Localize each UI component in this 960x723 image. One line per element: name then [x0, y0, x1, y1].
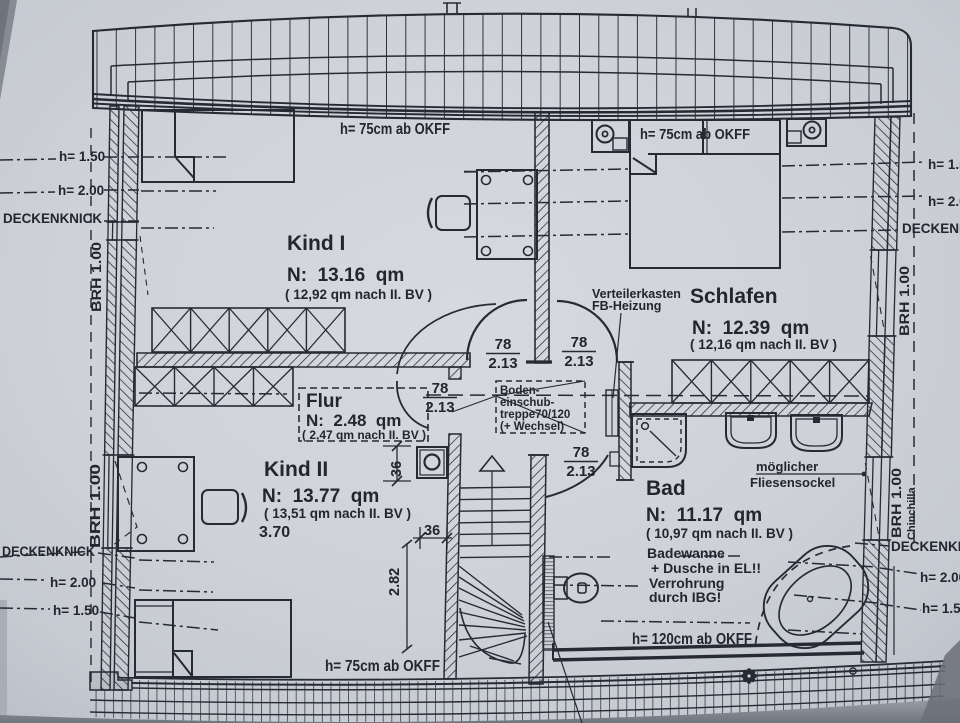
svg-text:Boden-: Boden-: [500, 385, 540, 397]
svg-text:Kind II: Kind II: [264, 458, 328, 481]
svg-text:FB-Heizung: FB-Heizung: [592, 299, 661, 313]
svg-text:BRH 1.00: BRH 1.00: [88, 464, 104, 548]
svg-text:36: 36: [424, 523, 440, 539]
svg-text:Fliesensockel: Fliesensockel: [750, 475, 835, 490]
svg-text:Bad: Bad: [646, 477, 686, 500]
svg-text:2.13: 2.13: [488, 355, 517, 372]
svg-text:DECKENKNICK: DECKENKNICK: [3, 211, 102, 226]
svg-text:BRH 1.00: BRH 1.00: [889, 468, 904, 538]
svg-text:h= 75cm ab OKFF: h= 75cm ab OKFF: [340, 121, 450, 138]
svg-text:( 10,97 qm nach II. BV ): ( 10,97 qm nach II. BV ): [646, 526, 793, 541]
svg-text:BRH 1.00: BRH 1.00: [897, 266, 912, 336]
svg-text:N: 13.77 qm: N: 13.77 qm: [262, 486, 379, 507]
svg-text:78: 78: [571, 334, 588, 351]
svg-text:2.82: 2.82: [387, 568, 403, 596]
svg-text:3.70: 3.70: [259, 524, 290, 541]
svg-text:N: 11.17 qm: N: 11.17 qm: [646, 505, 762, 526]
svg-text:N: 12.39 qm: N: 12.39 qm: [692, 318, 809, 339]
svg-text:h= 1.50: h= 1.50: [59, 149, 105, 164]
svg-text:DECKENKNICK: DECKENKNICK: [902, 221, 960, 236]
svg-text:+ Dusche in EL!!: + Dusche in EL!!: [651, 560, 761, 576]
svg-text:78: 78: [495, 336, 512, 353]
svg-text:h= 2.00: h= 2.00: [50, 575, 96, 590]
svg-text:h= 1.50: h= 1.50: [922, 601, 960, 616]
svg-text:36: 36: [389, 461, 405, 477]
svg-text:DECKENKNICK: DECKENKNICK: [891, 539, 960, 554]
svg-text:Chinchilla: Chinchilla: [906, 487, 918, 540]
svg-text:h= 2.00: h= 2.00: [58, 183, 104, 198]
svg-text:Flur: Flur: [306, 391, 342, 412]
svg-text:h= 120cm ab OKFF: h= 120cm ab OKFF: [632, 631, 752, 648]
svg-text:einschub-: einschub-: [500, 397, 554, 409]
svg-text:h= 2.00: h= 2.00: [920, 570, 960, 585]
svg-text:( 12,92 qm nach II. BV ): ( 12,92 qm nach II. BV ): [285, 287, 432, 302]
svg-text:( 12,16 qm nach II. BV ): ( 12,16 qm nach II. BV ): [690, 337, 837, 352]
svg-text:h= 2.00: h= 2.00: [928, 194, 960, 209]
svg-text:( 13,51 qm nach II. BV ): ( 13,51 qm nach II. BV ): [264, 506, 411, 521]
svg-text:(+ Wechsel): (+ Wechsel): [500, 421, 564, 433]
svg-text:Badewanne: Badewanne: [647, 545, 725, 561]
svg-text:DECKENKNICK: DECKENKNICK: [2, 544, 95, 559]
svg-text:BRH 1.00: BRH 1.00: [89, 242, 104, 312]
svg-text:h= 1.50: h= 1.50: [53, 603, 99, 618]
svg-text:2.13: 2.13: [425, 399, 454, 416]
svg-text:möglicher: möglicher: [756, 459, 818, 474]
svg-text:78: 78: [432, 380, 449, 397]
svg-text:2.13: 2.13: [566, 463, 595, 480]
svg-text:Schlafen: Schlafen: [690, 285, 778, 308]
svg-text:treppe70/120: treppe70/120: [500, 409, 570, 421]
svg-text:2.13: 2.13: [564, 353, 593, 370]
svg-text:( 2,47 qm nach II. BV ): ( 2,47 qm nach II. BV ): [302, 428, 426, 442]
svg-text:Kind I: Kind I: [287, 232, 345, 255]
svg-text:h= 75cm ab OKFF: h= 75cm ab OKFF: [640, 127, 750, 143]
svg-text:h= 75cm ab OKFF: h= 75cm ab OKFF: [325, 658, 440, 675]
svg-text:h= 1.50: h= 1.50: [928, 157, 960, 172]
svg-text:durch IBG!: durch IBG!: [649, 589, 721, 605]
svg-text:N: 13.16 qm: N: 13.16 qm: [287, 265, 404, 286]
svg-text:78: 78: [573, 444, 590, 461]
